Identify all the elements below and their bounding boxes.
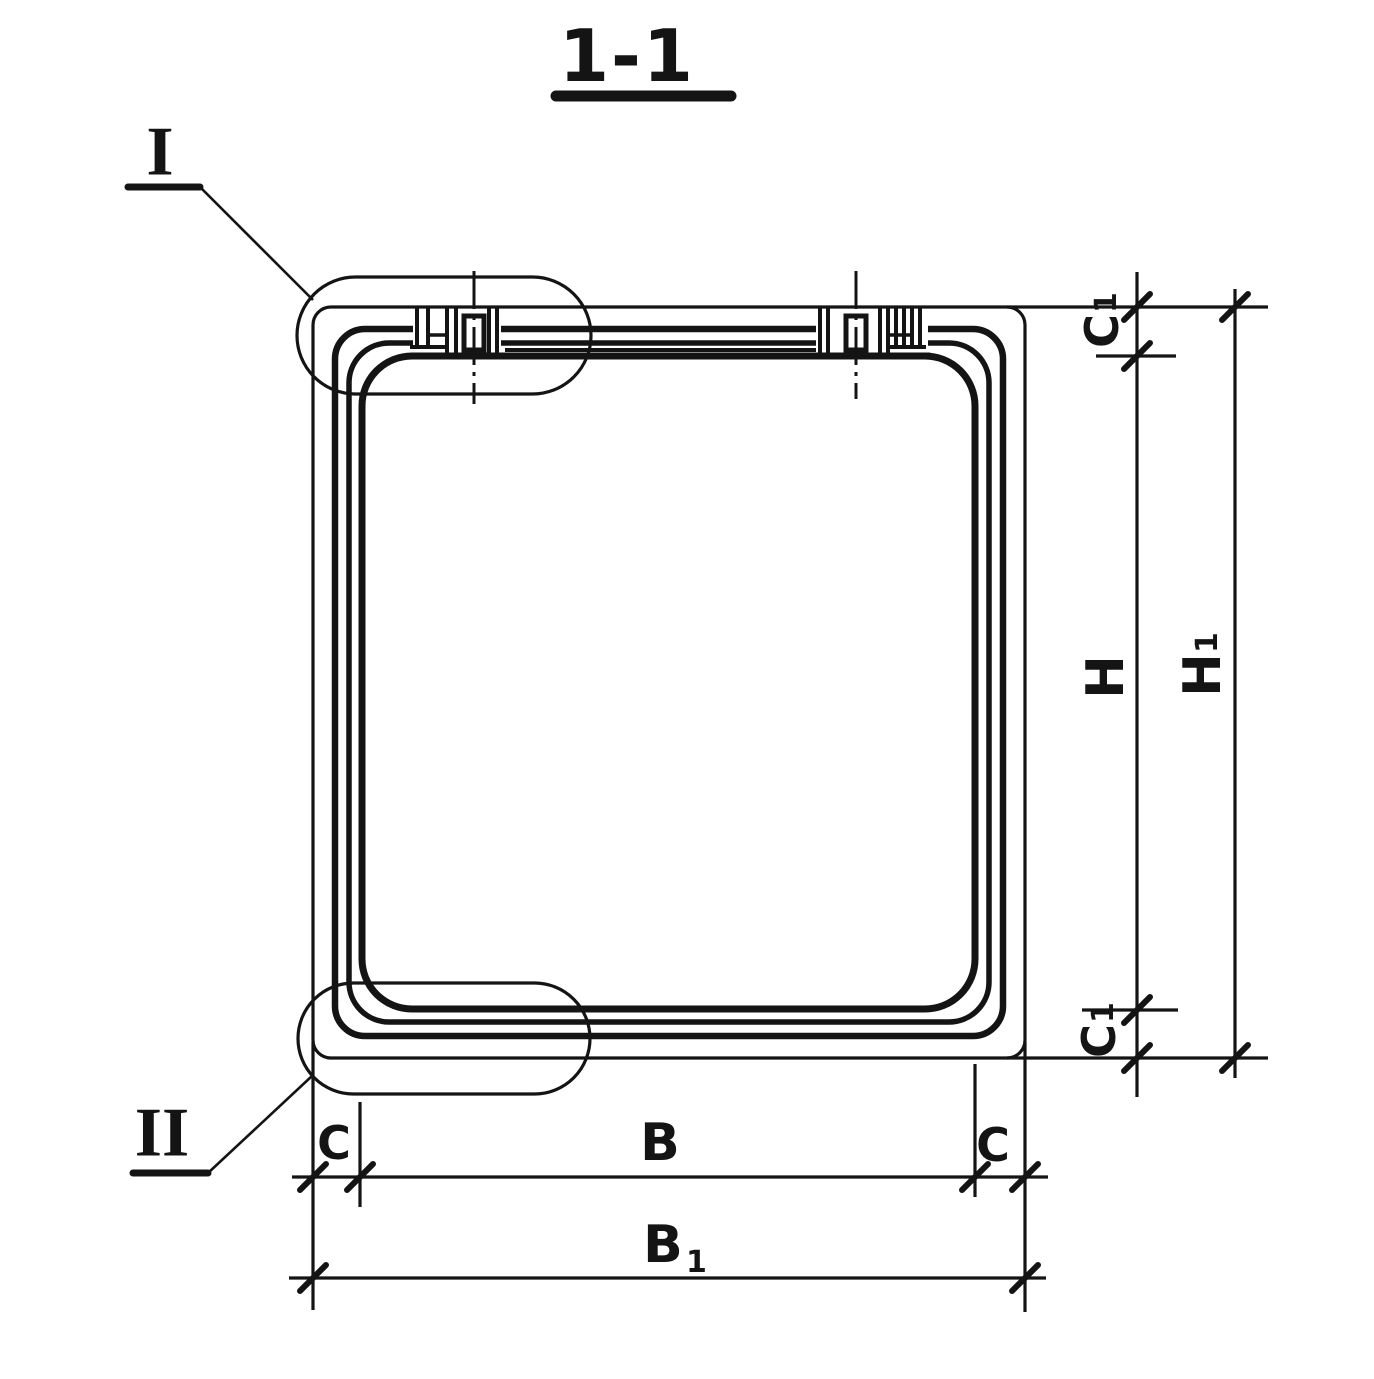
- detail-2-label: II: [135, 1095, 189, 1172]
- top-slab-joint-left: [410, 271, 503, 404]
- dim-label-c-right: C: [976, 1118, 1010, 1172]
- dim-label-c1-top: C 1: [1075, 292, 1129, 348]
- dimension-chain-bottom: C B C B 1: [289, 1042, 1048, 1312]
- dim-label-b: B: [640, 1113, 680, 1173]
- section-title-text: 1-1: [559, 14, 695, 98]
- dim-label-c1-bottom-base: C: [1072, 1024, 1126, 1058]
- dim-label-b1: B 1: [643, 1215, 707, 1280]
- dim-label-h: H: [1076, 655, 1136, 699]
- dim-label-c1-top-sub: 1: [1089, 292, 1124, 313]
- dim-label-h1-base: H: [1173, 653, 1233, 697]
- section-drawing-canvas: 1-1: [0, 0, 1374, 1379]
- top-slab-joint-right: [814, 271, 930, 399]
- dim-label-h1-sub: 1: [1190, 632, 1225, 653]
- dim-label-c1-top-base: C: [1075, 314, 1129, 348]
- detail-1-label: I: [146, 114, 173, 191]
- dim-label-h1: H 1: [1173, 632, 1233, 697]
- dim-label-c-left: C: [317, 1116, 351, 1170]
- dim-label-h-base: H: [1076, 655, 1136, 699]
- dimension-chain-right: C 1 H H 1 C 1: [1007, 272, 1268, 1097]
- dim-label-c1-bottom: C 1: [1072, 1002, 1126, 1058]
- frame-wall-line-2: [349, 343, 989, 1022]
- section-title: 1-1: [556, 14, 731, 98]
- frame-outer-edge: [313, 307, 1025, 1058]
- dim-label-b1-sub: 1: [686, 1245, 707, 1280]
- drawing-sheet: 1-1: [0, 0, 1374, 1379]
- frame-inner-edge: [362, 356, 975, 1009]
- detail-2-leader-line: [208, 1076, 312, 1173]
- frame-outline: [313, 307, 1025, 1058]
- dim-label-c1-bottom-sub: 1: [1086, 1002, 1121, 1023]
- dim-label-b1-base: B: [643, 1215, 683, 1275]
- detail-1-leader-line: [200, 187, 313, 300]
- frame-wall-line-1: [335, 329, 1003, 1036]
